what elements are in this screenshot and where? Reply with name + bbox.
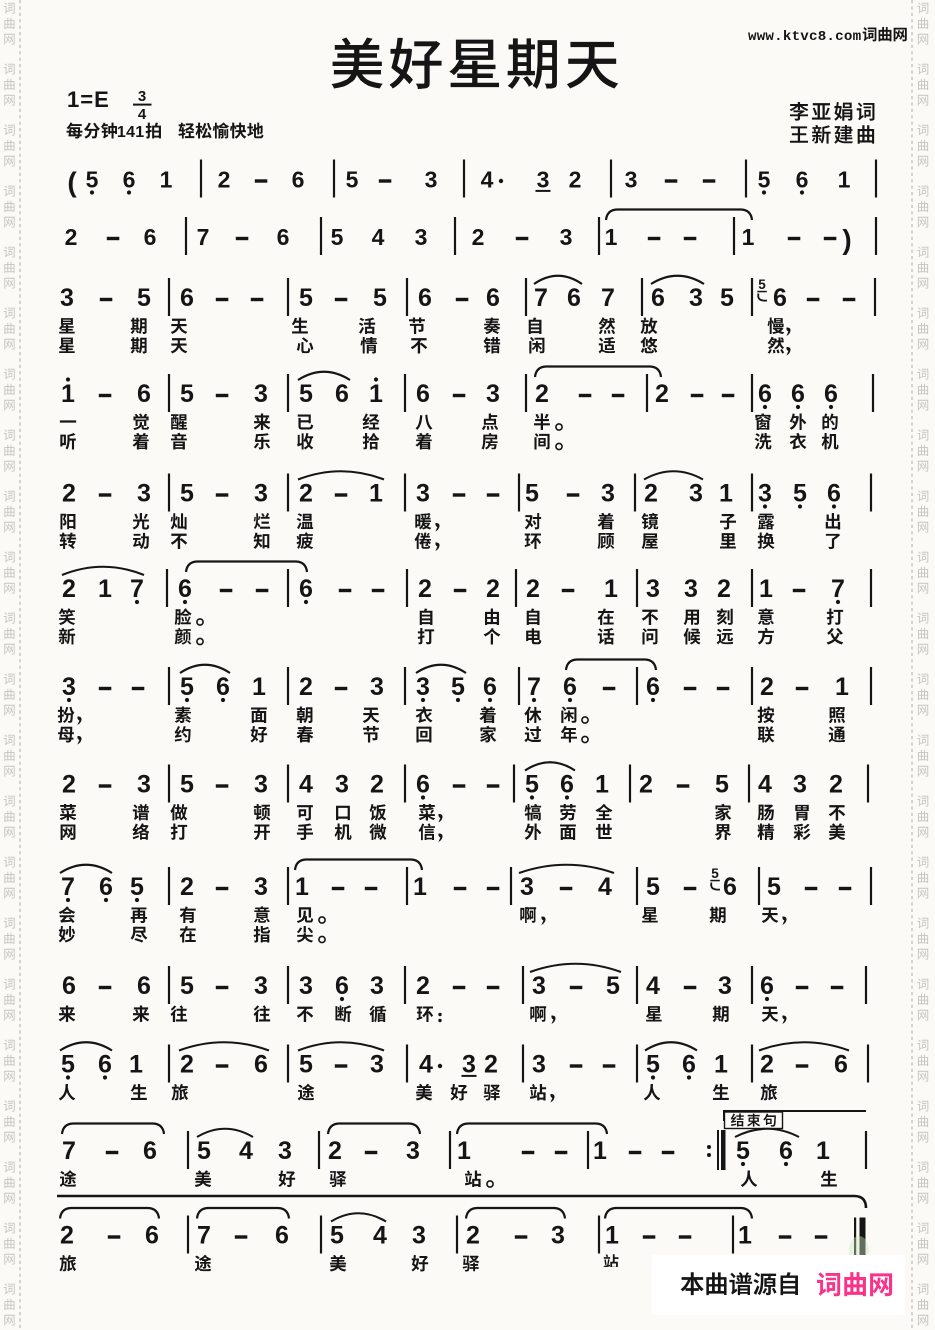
- svg-text:2: 2: [639, 771, 653, 799]
- svg-text:5: 5: [767, 873, 781, 901]
- svg-text:3: 3: [793, 771, 807, 799]
- svg-text:141: 141: [117, 124, 145, 141]
- svg-text:6: 6: [416, 771, 430, 799]
- svg-text:6: 6: [275, 1222, 289, 1250]
- svg-text:6: 6: [62, 972, 76, 1000]
- svg-text:4: 4: [646, 972, 660, 1000]
- svg-text:2: 2: [644, 480, 658, 508]
- svg-text:5: 5: [525, 480, 539, 508]
- svg-text:6: 6: [145, 1222, 159, 1250]
- svg-text:1: 1: [457, 1137, 471, 1165]
- svg-text:5: 5: [180, 972, 194, 1000]
- svg-text:3: 3: [278, 1137, 292, 1165]
- svg-text:3: 3: [646, 575, 660, 603]
- svg-text:6: 6: [144, 224, 157, 250]
- svg-text:4: 4: [481, 167, 494, 193]
- svg-text:3: 3: [254, 771, 268, 799]
- svg-text:1: 1: [252, 673, 266, 701]
- svg-text:5: 5: [525, 771, 539, 799]
- svg-text:3: 3: [532, 972, 546, 1000]
- svg-text:5: 5: [346, 167, 359, 193]
- svg-text:2: 2: [62, 575, 76, 603]
- svg-text:3: 3: [254, 480, 268, 508]
- svg-text:5: 5: [299, 380, 313, 408]
- svg-text:3: 3: [254, 380, 268, 408]
- svg-text:3: 3: [486, 380, 500, 408]
- svg-text:6: 6: [99, 873, 113, 901]
- svg-text:1: 1: [369, 480, 383, 508]
- svg-text:5: 5: [331, 224, 344, 250]
- svg-text:6: 6: [143, 1137, 157, 1165]
- svg-text:3: 3: [415, 224, 428, 250]
- svg-text:3: 3: [137, 771, 151, 799]
- svg-text:7: 7: [831, 575, 845, 603]
- svg-text:5: 5: [758, 167, 771, 193]
- svg-text:6: 6: [563, 673, 577, 701]
- svg-text:4: 4: [598, 873, 612, 901]
- svg-text:4: 4: [419, 1051, 433, 1079]
- svg-text:2: 2: [60, 1222, 74, 1250]
- svg-text:6: 6: [216, 673, 230, 701]
- svg-text:7: 7: [197, 1222, 211, 1250]
- svg-text:2: 2: [466, 1222, 480, 1250]
- svg-text:5: 5: [720, 284, 734, 312]
- svg-text:6: 6: [791, 380, 805, 408]
- svg-text:5: 5: [793, 480, 807, 508]
- svg-text:6: 6: [758, 380, 772, 408]
- svg-text:2: 2: [472, 224, 485, 250]
- svg-text:6: 6: [418, 284, 432, 312]
- svg-text:1=E: 1=E: [67, 87, 110, 112]
- svg-text:1: 1: [595, 771, 609, 799]
- svg-text:3: 3: [718, 972, 732, 1000]
- svg-text:6: 6: [560, 771, 574, 799]
- svg-text:2: 2: [370, 771, 384, 799]
- svg-text:6: 6: [824, 380, 838, 408]
- svg-text:): ): [842, 224, 851, 255]
- svg-text:2: 2: [299, 673, 313, 701]
- svg-text:6: 6: [760, 972, 774, 1000]
- svg-text:6: 6: [723, 873, 737, 901]
- svg-text:6: 6: [682, 1051, 696, 1079]
- svg-text:1: 1: [738, 1222, 752, 1250]
- svg-text:3: 3: [370, 972, 384, 1000]
- svg-text:5: 5: [646, 1051, 660, 1079]
- svg-text:6: 6: [335, 972, 349, 1000]
- svg-text:6: 6: [178, 575, 192, 603]
- svg-text:3: 3: [299, 972, 313, 1000]
- svg-text:4: 4: [299, 771, 313, 799]
- svg-text:(: (: [67, 167, 77, 198]
- svg-text:2: 2: [418, 575, 432, 603]
- svg-text:3: 3: [412, 1222, 426, 1250]
- svg-text:3: 3: [560, 224, 573, 250]
- svg-text:3: 3: [684, 575, 698, 603]
- svg-text:6: 6: [292, 167, 305, 193]
- svg-text:5: 5: [180, 771, 194, 799]
- svg-text:2: 2: [484, 1051, 498, 1079]
- svg-text:1: 1: [605, 224, 618, 250]
- svg-text:4: 4: [239, 1137, 253, 1165]
- svg-text:1: 1: [742, 224, 755, 250]
- svg-text:5: 5: [197, 1137, 211, 1165]
- svg-text:3: 3: [416, 673, 430, 701]
- svg-text:5: 5: [180, 480, 194, 508]
- svg-text:7: 7: [197, 224, 210, 250]
- svg-text:2: 2: [328, 1137, 342, 1165]
- svg-text:5: 5: [646, 873, 660, 901]
- svg-text:2: 2: [535, 380, 549, 408]
- svg-text:1: 1: [160, 167, 173, 193]
- svg-text:5: 5: [330, 1222, 344, 1250]
- svg-text:6: 6: [796, 167, 809, 193]
- svg-text:1: 1: [719, 480, 733, 508]
- svg-text:6: 6: [416, 380, 430, 408]
- svg-text:2: 2: [486, 575, 500, 603]
- svg-text:6: 6: [299, 575, 313, 603]
- svg-text:3: 3: [425, 167, 438, 193]
- svg-text:5: 5: [61, 1051, 75, 1079]
- svg-text:7: 7: [62, 1137, 76, 1165]
- svg-text:2: 2: [218, 167, 231, 193]
- svg-text:1: 1: [759, 575, 773, 603]
- svg-text:www.ktvc8.com: www.ktvc8.com: [748, 29, 861, 45]
- svg-text:3: 3: [601, 480, 615, 508]
- svg-text:3: 3: [60, 284, 74, 312]
- svg-text:3: 3: [537, 167, 550, 193]
- svg-text:6: 6: [483, 673, 497, 701]
- svg-text:5: 5: [715, 771, 729, 799]
- svg-text:1: 1: [593, 1137, 607, 1165]
- svg-text:6: 6: [834, 1051, 848, 1079]
- svg-text:2: 2: [180, 1051, 194, 1079]
- svg-text:1: 1: [816, 1137, 830, 1165]
- svg-text:4: 4: [372, 224, 385, 250]
- svg-text:6: 6: [137, 972, 151, 1000]
- svg-text:2: 2: [62, 771, 76, 799]
- svg-text:1: 1: [838, 167, 851, 193]
- svg-text:1: 1: [98, 575, 112, 603]
- svg-text:5: 5: [130, 873, 144, 901]
- svg-text:3: 3: [689, 284, 703, 312]
- svg-text:3: 3: [138, 88, 146, 105]
- svg-text:6: 6: [827, 480, 841, 508]
- svg-text:4: 4: [758, 771, 772, 799]
- svg-text:2: 2: [760, 1051, 774, 1079]
- svg-text:3: 3: [62, 673, 76, 701]
- svg-text:5: 5: [758, 277, 766, 292]
- svg-text:3: 3: [137, 480, 151, 508]
- svg-text:6: 6: [651, 284, 665, 312]
- svg-text:3: 3: [254, 873, 268, 901]
- svg-text:6: 6: [779, 1137, 793, 1165]
- svg-text:6: 6: [646, 673, 660, 701]
- svg-text:2: 2: [299, 480, 313, 508]
- svg-text:5: 5: [736, 1137, 750, 1165]
- svg-text:4: 4: [138, 106, 147, 123]
- svg-text:6: 6: [773, 284, 787, 312]
- svg-text:3: 3: [462, 1051, 476, 1079]
- svg-text:4: 4: [373, 1222, 387, 1250]
- svg-text:6: 6: [254, 1051, 268, 1079]
- svg-text:2: 2: [526, 575, 540, 603]
- svg-text:3: 3: [689, 480, 703, 508]
- svg-text:6: 6: [98, 1051, 112, 1079]
- svg-text:7: 7: [534, 284, 548, 312]
- svg-text:1: 1: [835, 673, 849, 701]
- svg-text:7: 7: [130, 575, 144, 603]
- svg-text:2: 2: [569, 167, 582, 193]
- svg-text:5: 5: [451, 673, 465, 701]
- svg-text:7: 7: [61, 873, 75, 901]
- svg-text:6: 6: [567, 284, 581, 312]
- svg-text:3: 3: [758, 480, 772, 508]
- svg-text:2: 2: [829, 771, 843, 799]
- svg-text:5: 5: [299, 1051, 313, 1079]
- svg-text:5: 5: [180, 380, 194, 408]
- svg-text:6: 6: [277, 224, 290, 250]
- svg-text:6: 6: [335, 380, 349, 408]
- svg-text:5: 5: [373, 284, 387, 312]
- svg-text:1: 1: [61, 380, 75, 408]
- svg-text:2: 2: [760, 673, 774, 701]
- svg-text:1: 1: [605, 1222, 619, 1250]
- svg-text:5: 5: [711, 866, 719, 881]
- svg-text:1: 1: [714, 1051, 728, 1079]
- svg-text:3: 3: [551, 1222, 565, 1250]
- svg-text:3: 3: [416, 480, 430, 508]
- svg-text:3: 3: [532, 1051, 546, 1079]
- svg-text:2: 2: [65, 224, 78, 250]
- svg-text:2: 2: [416, 972, 430, 1000]
- svg-text:3: 3: [406, 1137, 420, 1165]
- svg-text:2: 2: [717, 575, 731, 603]
- svg-text:3: 3: [625, 167, 638, 193]
- svg-text:5: 5: [606, 972, 620, 1000]
- svg-text:6: 6: [180, 284, 194, 312]
- svg-text:6: 6: [123, 167, 136, 193]
- svg-text:7: 7: [601, 284, 615, 312]
- svg-text:3: 3: [370, 1051, 384, 1079]
- svg-text:6: 6: [137, 380, 151, 408]
- svg-text:3: 3: [335, 771, 349, 799]
- svg-text:1: 1: [413, 873, 427, 901]
- svg-text:5: 5: [299, 284, 313, 312]
- svg-text:5: 5: [137, 284, 151, 312]
- svg-text:1: 1: [129, 1051, 143, 1079]
- svg-text:3: 3: [520, 873, 534, 901]
- svg-text:2: 2: [180, 873, 194, 901]
- svg-text:1: 1: [369, 380, 383, 408]
- svg-text:5: 5: [86, 167, 99, 193]
- svg-text:1: 1: [295, 873, 309, 901]
- svg-text:6: 6: [486, 284, 500, 312]
- svg-text:1: 1: [604, 575, 618, 603]
- svg-text:5: 5: [180, 673, 194, 701]
- svg-text:2: 2: [655, 380, 669, 408]
- svg-text:3: 3: [254, 972, 268, 1000]
- svg-text:3: 3: [370, 673, 384, 701]
- svg-text:7: 7: [527, 673, 541, 701]
- svg-text:2: 2: [62, 480, 76, 508]
